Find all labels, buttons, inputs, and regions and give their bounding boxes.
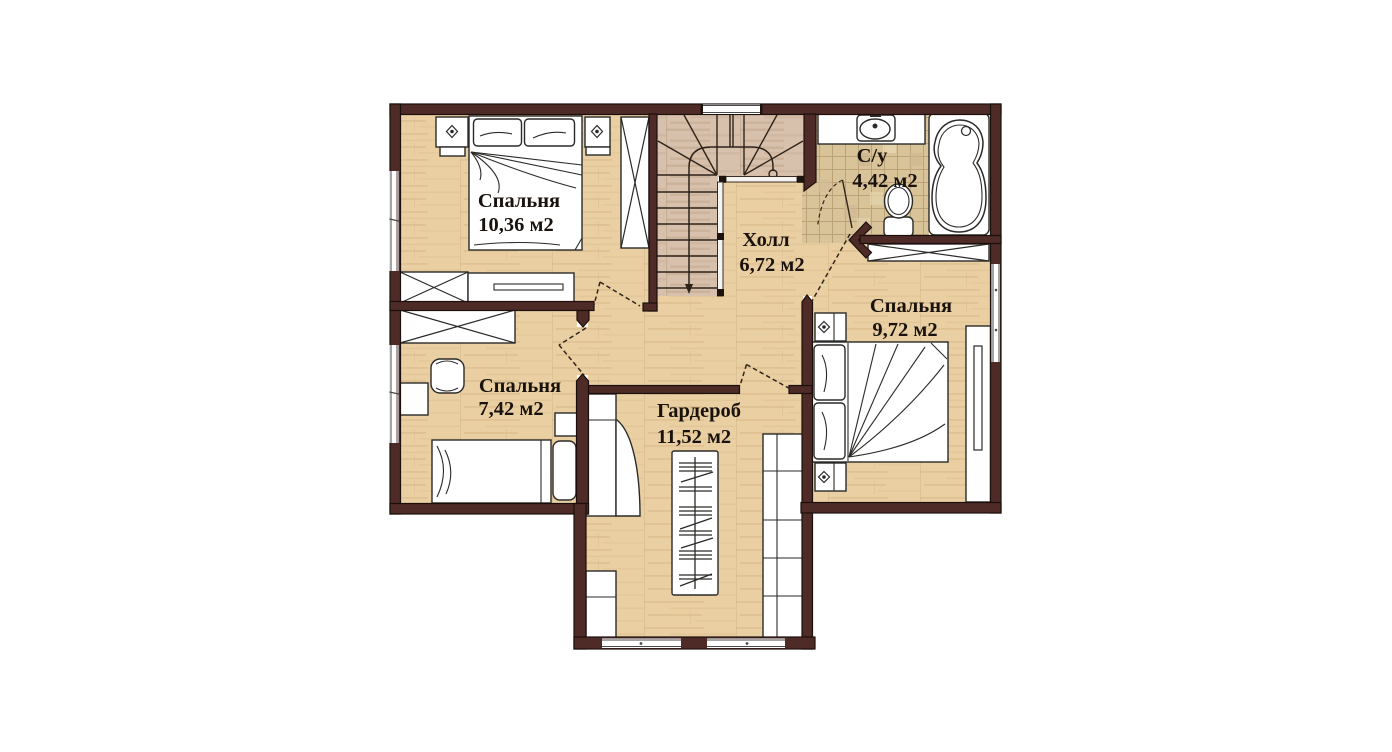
svg-text:Гардероб: Гардероб	[657, 400, 741, 422]
svg-text:7,42 м2: 7,42 м2	[478, 398, 543, 420]
svg-text:6,72 м2: 6,72 м2	[739, 254, 804, 276]
svg-text:С/у: С/у	[857, 145, 889, 167]
svg-text:4,42 м2: 4,42 м2	[852, 170, 917, 192]
svg-text:Спальня: Спальня	[478, 190, 560, 212]
svg-text:11,52 м2: 11,52 м2	[657, 426, 731, 448]
svg-text:Холл: Холл	[742, 229, 789, 251]
svg-text:9,72 м2: 9,72 м2	[872, 319, 937, 341]
svg-text:Спальня: Спальня	[870, 295, 952, 317]
svg-text:10,36 м2: 10,36 м2	[478, 214, 553, 236]
svg-text:Спальня: Спальня	[479, 375, 561, 397]
